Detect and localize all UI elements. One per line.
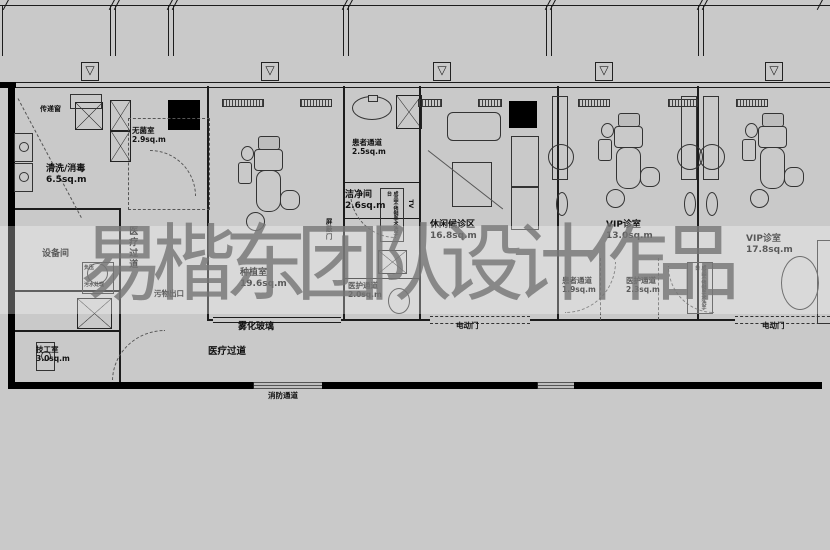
room-area: 2.9sq.m xyxy=(132,135,166,144)
reference-line xyxy=(0,5,830,6)
grid-drop-line xyxy=(2,6,3,56)
divider xyxy=(345,182,419,183)
door-gap xyxy=(537,382,576,389)
vent-marker-icon: ▽ xyxy=(81,62,99,81)
vent-glyph: ▽ xyxy=(85,63,94,77)
electric-door-2-label: 电动门 xyxy=(762,321,785,330)
room-label-cleaning: 清洗/消毒 6.5sq.m xyxy=(46,164,87,187)
fire-exit-label: 消防通道 xyxy=(268,391,298,400)
pass-window-label: 传递窗 xyxy=(40,105,61,114)
medical-corridor-label: 医疗过道 xyxy=(208,346,246,358)
room-area: 6.5sq.m xyxy=(46,175,87,186)
sink xyxy=(14,163,33,192)
cabinet-basin xyxy=(548,144,574,170)
room-label-sterile: 无菌室 2.9sq.m xyxy=(132,126,166,145)
dental-chair-vip1 xyxy=(598,113,656,217)
room-name: 清洗/消毒 xyxy=(46,164,87,175)
grille xyxy=(736,99,768,107)
room-name: 技工室 xyxy=(36,345,70,354)
bottom-wall xyxy=(8,382,253,389)
room-label-technician: 技工室 3.0sq.m xyxy=(36,345,70,364)
bottom-wall xyxy=(322,382,537,389)
cabinet-basin xyxy=(699,144,725,170)
vent-glyph: ▽ xyxy=(769,63,778,77)
room-name: 无菌室 xyxy=(132,126,166,135)
shaft-xbox xyxy=(396,95,422,129)
room-name: 患者通道 xyxy=(352,138,386,147)
sink xyxy=(14,133,33,162)
room-label-clean-room: 洁净间 2.6sq.m xyxy=(345,190,386,213)
sofa xyxy=(447,112,501,141)
wall-fixture xyxy=(556,192,568,216)
grid-drop-line xyxy=(168,6,174,56)
washbasin xyxy=(352,96,392,120)
vent-marker-icon: ▽ xyxy=(433,62,451,81)
fire-door xyxy=(253,382,324,389)
room-area: 2.5sq.m xyxy=(352,147,386,156)
vent-marker-icon: ▽ xyxy=(261,62,279,81)
dental-chair-vip2 xyxy=(742,113,800,217)
watermark-text: 易楷东团队设计作品 xyxy=(80,222,780,308)
floorplan-canvas: ▽ ▽ ▽ ▽ ▽ xyxy=(0,0,830,550)
vent-marker-icon: ▽ xyxy=(595,62,613,81)
vent-glyph: ▽ xyxy=(599,63,608,77)
room-area: 2.6sq.m xyxy=(345,201,386,212)
top-wall xyxy=(0,82,830,88)
electric-door-1-label: 电动门 xyxy=(456,321,479,330)
vent-glyph: ▽ xyxy=(437,63,446,77)
tv-label: TV xyxy=(407,199,415,208)
grille xyxy=(222,99,264,107)
bottom-wall xyxy=(574,382,822,389)
pass-window-box xyxy=(70,94,102,109)
bench-upper xyxy=(511,136,539,188)
room-area: 3.0sq.m xyxy=(36,354,70,363)
grid-drop-line xyxy=(546,6,552,56)
grille xyxy=(578,99,610,107)
wall-fixture xyxy=(706,192,718,216)
wall xyxy=(15,208,121,210)
grid-drop-line xyxy=(343,6,349,56)
electric-door-1-leaf xyxy=(430,316,530,324)
wall-fixture xyxy=(684,192,696,216)
vent-glyph: ▽ xyxy=(265,63,274,77)
room-label-patient-corridor-1: 患者通道 2.5sq.m xyxy=(352,138,386,157)
grid-drop-line xyxy=(110,6,116,56)
wall-technician-top xyxy=(15,330,121,332)
grille xyxy=(300,99,332,107)
grille xyxy=(478,99,502,107)
fog-glass-label: 雾化玻璃 xyxy=(238,322,274,333)
grid-drop-line xyxy=(698,6,704,56)
room-name: 洁净间 xyxy=(345,190,386,201)
vent-marker-icon: ▽ xyxy=(765,62,783,81)
fog-glass-wall xyxy=(213,317,341,323)
column xyxy=(509,101,537,128)
